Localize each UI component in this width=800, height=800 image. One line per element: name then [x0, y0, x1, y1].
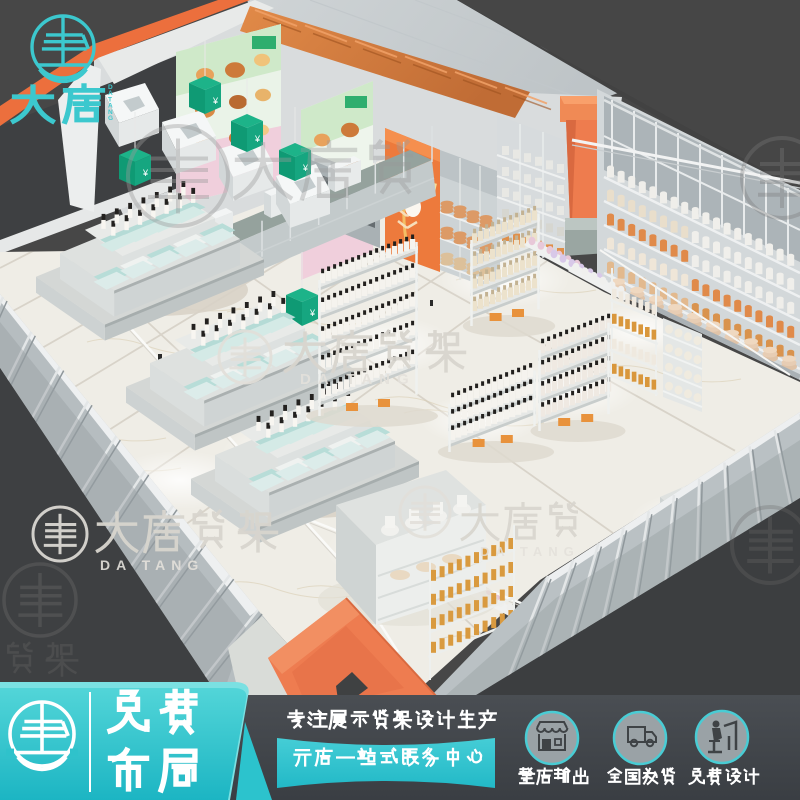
- svg-text:DA TANG: DA TANG: [480, 544, 580, 559]
- svg-text:¥: ¥: [212, 96, 219, 106]
- svg-text:¥: ¥: [254, 134, 261, 144]
- svg-text:¥: ¥: [309, 308, 316, 318]
- svg-text:¥: ¥: [142, 168, 149, 178]
- svg-text:DA TANG: DA TANG: [100, 557, 204, 573]
- svg-text:DA TANG: DA TANG: [300, 371, 416, 388]
- svg-text:G: G: [108, 115, 113, 122]
